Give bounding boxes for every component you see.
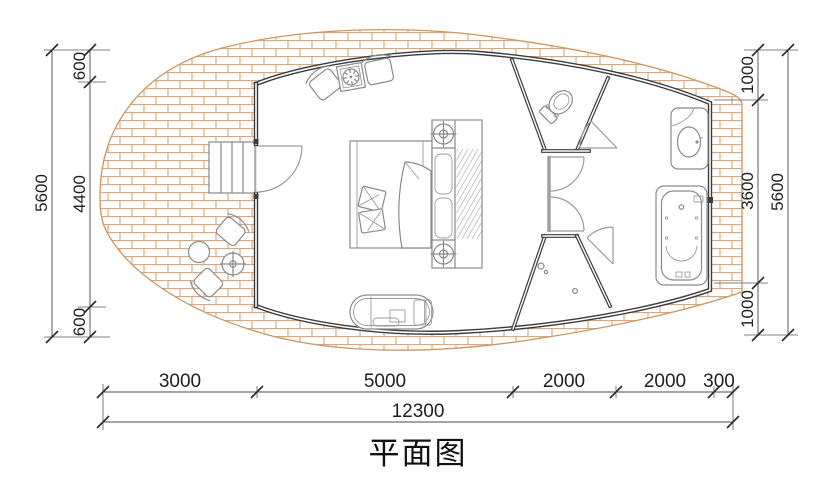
dim-bottom-total: 12300 xyxy=(392,401,445,422)
bathtub xyxy=(656,186,707,285)
entry-steps xyxy=(209,142,255,193)
floor-plan-drawing: 5600 600 4400 600 1000 3600 1000 5600 30… xyxy=(0,0,837,496)
headboard-wardrobe-unit xyxy=(431,120,483,268)
blanket xyxy=(399,162,431,248)
dim-right-seg: 1000 xyxy=(738,290,757,328)
pillow xyxy=(359,209,386,233)
wardrobe-hatch xyxy=(457,149,482,239)
chaise-bench xyxy=(350,295,433,329)
dim-right-total: 5600 xyxy=(768,173,787,211)
dim-bottom-seg: 2000 xyxy=(644,371,686,392)
dim-right-seg: 1000 xyxy=(738,56,757,94)
dim-bottom-seg: 3000 xyxy=(159,371,201,392)
dim-bottom-seg: 5000 xyxy=(364,371,406,392)
dim-left-seg: 4400 xyxy=(70,175,89,213)
round-table xyxy=(189,242,210,263)
stove-table xyxy=(337,63,366,92)
dim-bottom-seg: 300 xyxy=(703,371,735,392)
bottom-dimensions: 3000 5000 2000 2000 300 12300 xyxy=(97,371,739,430)
double-bed xyxy=(350,141,432,248)
dim-left-total: 5600 xyxy=(32,174,51,212)
dim-left-seg: 600 xyxy=(70,52,89,80)
left-dimensions: 5600 600 4400 600 xyxy=(32,44,110,343)
dim-left-seg: 600 xyxy=(70,308,89,336)
washbasin-vanity xyxy=(671,108,708,169)
floor-plan-canvas: 5600 600 4400 600 1000 3600 1000 5600 30… xyxy=(0,0,837,496)
dim-right-seg: 3600 xyxy=(738,172,757,210)
drawing-title: 平面图 xyxy=(369,436,468,471)
dim-bottom-seg: 2000 xyxy=(543,371,585,392)
